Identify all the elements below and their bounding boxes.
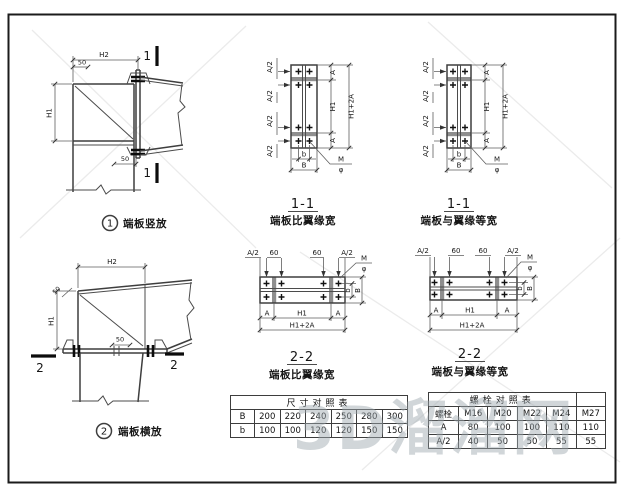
dim-label-a2: A/2 (417, 247, 429, 255)
dim-label-a: A (483, 138, 491, 143)
section-caption: 端板与翼缘等宽 (421, 214, 498, 227)
bolt-table-title-spacer (576, 393, 605, 407)
cell: 250 (331, 410, 357, 424)
cell: 100 (255, 424, 281, 438)
section-title: 1-1 (447, 197, 471, 212)
detail-1-title: 端板竖放 (123, 217, 167, 230)
dim-label-a2: A/2 (341, 249, 353, 257)
table-header-row: 螺栓 M16 M20 M22 M24 M27 (429, 407, 606, 421)
size-table-title-row: 尺寸对照表 (231, 396, 408, 410)
header-label: 螺栓 (429, 407, 459, 421)
section-title: 2-2 (458, 347, 482, 362)
dim-label-b-small: b (516, 286, 524, 291)
section-mark-1: 1 (143, 166, 151, 180)
cell: 240 (306, 410, 332, 424)
dim-label-h1: H1 (297, 310, 307, 318)
dim-label-b-big: B (354, 288, 362, 293)
detail-number: 2 (101, 427, 107, 438)
cell: 100 (517, 421, 546, 435)
cell: 110 (547, 421, 576, 435)
header-cell: M22 (517, 407, 546, 421)
dim-label-h1: H1 (465, 307, 475, 315)
header-cell: M16 (459, 407, 488, 421)
dim-label-a2: A/2 (266, 61, 274, 73)
dim-label-50: 50 (121, 155, 129, 163)
dim-label-h1-2a: H1+2A (502, 94, 510, 119)
dim-label-h1: H1 (46, 108, 54, 118)
detail-2-title: 端板横放 (118, 425, 162, 438)
cell: 50 (517, 435, 546, 449)
dim-label-a2: A/2 (266, 90, 274, 102)
row-label: B (231, 410, 255, 424)
cell: 110 (576, 421, 605, 435)
cell: 55 (547, 435, 576, 449)
cell: 150 (357, 424, 383, 438)
dim-label-h2: H2 (99, 51, 109, 59)
dim-label-a: A (434, 307, 439, 315)
table-row: b 100 100 120 120 150 150 (231, 424, 408, 438)
row-label: A/2 (429, 435, 459, 449)
bolt-table-title-row: 螺栓对照表 (429, 393, 606, 407)
dim-label-50: 50 (116, 336, 124, 344)
dim-label-h1-2a: H1+2A (460, 322, 485, 330)
size-table-title: 尺寸对照表 (231, 396, 408, 410)
cell: 200 (255, 410, 281, 424)
cell: 280 (357, 410, 383, 424)
leader-label-phi: φ (528, 264, 533, 272)
section-mark-1: 1 (143, 49, 151, 63)
dim-label-h1: H1 (48, 316, 56, 326)
dim-label-a2: A/2 (266, 115, 274, 127)
cell: 150 (382, 424, 408, 438)
dim-label-a2: A/2 (422, 145, 430, 157)
cell: 120 (306, 424, 332, 438)
bolt-table: 螺栓对照表 螺栓 M16 M20 M22 M24 M27 A 80 100 10… (428, 392, 606, 449)
dim-label-b-big: B (302, 162, 307, 170)
row-label: A (429, 421, 459, 435)
detail-1-drawing: H2 50 1 1 H1 50 1 端板竖放 (46, 46, 186, 231)
cell: 50 (488, 435, 517, 449)
dim-label-h1-2a: H1+2A (290, 322, 315, 330)
size-table: 尺寸对照表 B 200 220 240 250 280 300 b 100 10… (230, 395, 408, 438)
dim-label-h1: H1 (329, 102, 337, 112)
table-row: A/2 40 50 50 55 55 (429, 435, 606, 449)
dim-label-a: A (505, 307, 510, 315)
cell: 100 (488, 421, 517, 435)
header-cell: M24 (547, 407, 576, 421)
cell: 300 (382, 410, 408, 424)
header-cell: M20 (488, 407, 517, 421)
dim-label-60: 60 (270, 249, 279, 257)
dim-label-a2: A/2 (507, 247, 519, 255)
dim-label-h2: H2 (107, 258, 117, 266)
dim-label-b-big: B (526, 286, 534, 291)
cell: 220 (280, 410, 306, 424)
leader-label-m: M (338, 156, 344, 164)
dim-label-a2: A/2 (422, 115, 430, 127)
cell: 80 (459, 421, 488, 435)
dim-label-a2: A/2 (266, 145, 274, 157)
leader-label-phi: φ (495, 166, 500, 174)
detail-2-drawing: H2 50 H1 50 2 2 2 端板横放 (31, 258, 194, 439)
dim-label-a2: A/2 (422, 61, 430, 73)
cell: 40 (459, 435, 488, 449)
dim-label-a: A (336, 310, 341, 318)
section-2-2-equal: A/2 60 60 A/2 M φ A H1 A H1+2A b B 2-2 端… (415, 247, 538, 378)
dim-label-h1: H1 (483, 102, 491, 112)
dim-label-b-small: b (302, 151, 307, 159)
section-2-2-wide: A/2 60 60 A/2 M φ A H1 A H1+2A b B 2-2 端… (245, 249, 372, 381)
dim-label-50: 50 (78, 59, 86, 67)
dim-label-h1-2a: H1+2A (348, 94, 356, 119)
bolt-table-title: 螺栓对照表 (429, 393, 577, 407)
dim-label-a: A (483, 70, 491, 75)
dim-label-a: A (329, 138, 337, 143)
dim-label-50: 50 (51, 285, 63, 297)
dim-label-60: 60 (313, 249, 322, 257)
cell: 100 (280, 424, 306, 438)
section-caption: 端板比翼缘宽 (270, 214, 336, 227)
section-title: 1-1 (291, 197, 315, 212)
leader-label-m: M (361, 255, 367, 263)
dim-label-a: A (329, 70, 337, 75)
dim-label-b-small: b (457, 151, 462, 159)
cell: 120 (331, 424, 357, 438)
section-mark-2: 2 (170, 358, 178, 372)
section-1-1-wide: A/2 A/2 A/2 A/2 A H1 A H1+2A b B M φ 1-1… (266, 58, 356, 227)
dim-label-b-small: b (344, 288, 352, 293)
cell: 55 (576, 435, 605, 449)
leader-label-phi: φ (339, 166, 344, 174)
dim-label-a2: A/2 (247, 249, 259, 257)
leader-label-phi: φ (362, 265, 367, 273)
section-caption: 端板比翼缘宽 (269, 368, 335, 381)
section-caption: 端板与翼缘等宽 (432, 365, 509, 378)
header-cell: M27 (576, 407, 605, 421)
drawing-sheet: H2 50 1 1 H1 50 1 端板竖放 A/2 A/2 A/2 A/2 A (0, 0, 624, 500)
dim-label-a2: A/2 (422, 90, 430, 102)
table-row: B 200 220 240 250 280 300 (231, 410, 408, 424)
leader-label-m: M (494, 156, 500, 164)
dim-label-60: 60 (479, 247, 488, 255)
detail-number: 1 (107, 219, 113, 230)
section-mark-2: 2 (36, 361, 44, 375)
row-label: b (231, 424, 255, 438)
dim-label-60: 60 (452, 247, 461, 255)
dim-label-a: A (265, 310, 270, 318)
leader-label-m: M (527, 254, 533, 262)
section-title: 2-2 (290, 350, 314, 365)
table-row: A 80 100 100 110 110 (429, 421, 606, 435)
dim-label-b-big: B (457, 162, 462, 170)
